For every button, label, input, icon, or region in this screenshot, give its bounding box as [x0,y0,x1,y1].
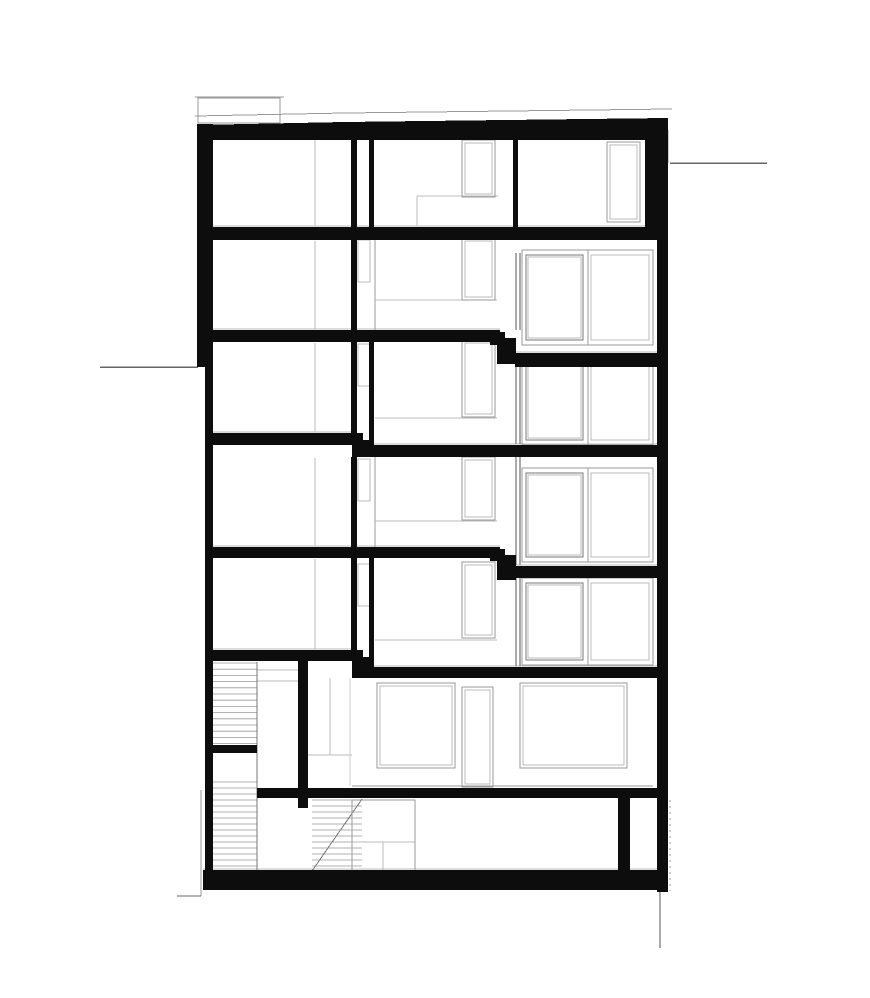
shaft-window [358,344,370,386]
glazing-unit-fixed-pane [591,363,649,440]
glazing-unit-sash-inner [528,257,581,338]
interior-wall [351,240,357,330]
interior-wall [369,558,374,667]
glazing-unit-sash [526,473,583,557]
stair-core-wall [298,661,308,808]
roof-edge-line [195,113,345,116]
floor-slab-3-right [515,353,658,367]
floor-slab-6-left [213,650,352,661]
glazing-unit-fixed-pane [591,583,649,660]
window-frame-inner [465,343,492,414]
exterior-wall-right-top [645,124,668,240]
slab-step [497,338,516,364]
floor-slab-6-right [370,667,658,678]
floor-slab-3-left [213,330,500,342]
glazing-unit-sash [526,583,583,660]
interior-wall [351,139,357,227]
roof-edge-line [345,109,672,113]
window-frame [462,140,495,197]
stair-landing-slab [205,745,257,753]
window-frame-inner [465,460,492,517]
window-frame [462,562,495,638]
glazing-unit-sash [526,363,583,440]
window-frame [462,457,495,520]
door-frame [462,687,493,787]
partition-wall-top-floor [513,140,518,227]
window-frame-inner [465,565,492,635]
chimney-outline [198,98,280,123]
slab-step [497,555,516,580]
window-frame [520,683,627,768]
section-drawing [0,0,870,998]
basement-wall [618,798,630,872]
shaft-window [358,564,370,606]
window-frame [462,340,495,417]
window-frame-inner [465,241,492,297]
interior-wall [351,342,357,440]
interior-wall [351,558,357,657]
glazing-unit-fixed-pane [591,255,649,340]
interior-wall [369,140,374,227]
window-frame [607,142,640,222]
door-frame-inner [465,690,490,784]
glazing-unit-fixed-pane [591,473,649,557]
glazing-unit-sash-inner [528,365,581,438]
window-frame-inner [610,145,637,219]
exterior-wall-right [657,240,668,892]
window-frame-inner [380,686,452,765]
foundation-slab [203,870,668,890]
floor-slab-5-right [515,566,658,578]
window-frame-inner [523,686,624,765]
interior-wall [351,457,357,547]
roof-slab [197,118,668,140]
shaft-window [358,459,370,501]
interior-wall [369,342,374,445]
floor-slab-4-left [213,433,352,445]
shaft-window [358,240,370,282]
window-frame [377,683,455,768]
window-frame-inner [465,143,492,194]
floor-slab-4-right [370,445,658,457]
floor-slab-5-left [213,547,500,558]
exterior-wall-left-upper [197,124,213,367]
glazing-unit-sash-inner [528,585,581,658]
architectural-section-page [0,0,870,998]
exterior-wall-left-lower [205,367,213,886]
glazing-unit-sash-inner [528,475,581,555]
glazing-unit-sash [526,255,583,340]
window-frame [462,238,495,300]
floor-slab-2 [213,227,658,240]
garden-level-slab [257,788,658,798]
